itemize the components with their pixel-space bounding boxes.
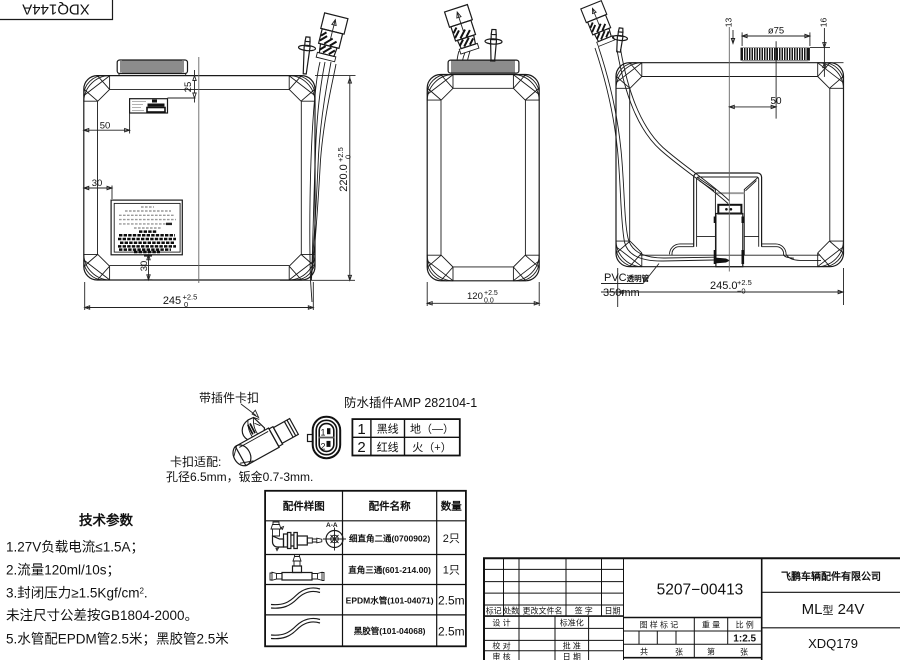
svg-text:设 计: 设 计 <box>492 618 510 628</box>
svg-text:30: 30 <box>92 178 103 189</box>
svg-text:图 样 标 记: 图 样 标 记 <box>640 620 679 630</box>
svg-text:2.流量120ml/10s；: 2.流量120ml/10s； <box>6 563 120 579</box>
svg-text:A-A: A-A <box>326 522 338 529</box>
svg-text:配件样图: 配件样图 <box>283 500 325 513</box>
svg-text:红线: 红线 <box>377 440 399 454</box>
svg-text:日 期: 日 期 <box>563 653 581 660</box>
svg-text:2只: 2只 <box>443 533 460 545</box>
svg-text:共: 共 <box>640 648 648 657</box>
svg-text:标准化: 标准化 <box>560 618 584 628</box>
svg-text:−0: −0 <box>737 287 746 296</box>
svg-text:1: 1 <box>321 428 326 438</box>
svg-text:张: 张 <box>740 648 748 657</box>
svg-text:1:2.5: 1:2.5 <box>733 634 756 645</box>
svg-text:2.5m: 2.5m <box>438 594 465 608</box>
svg-text:0.0: 0.0 <box>484 298 494 305</box>
svg-text:1: 1 <box>357 421 365 438</box>
svg-text:直角三通(601-214.00): 直角三通(601-214.00) <box>348 565 431 575</box>
svg-text:EPDM水管(101-04071): EPDM水管(101-04071) <box>346 596 434 606</box>
svg-text:未注尺寸公差按GB1804-2000。: 未注尺寸公差按GB1804-2000。 <box>6 608 198 623</box>
svg-text:2: 2 <box>357 439 365 456</box>
svg-text:5207−00413: 5207−00413 <box>657 582 744 599</box>
svg-text:1.27V负载电流≤1.5A；: 1.27V负载电流≤1.5A； <box>6 540 144 556</box>
svg-text:处数: 处数 <box>503 606 519 616</box>
svg-text:审 核: 审 核 <box>492 652 510 660</box>
svg-text:卡扣适配:: 卡扣适配: <box>170 455 221 469</box>
svg-text:校 对: 校 对 <box>492 641 510 651</box>
svg-text:比 例: 比 例 <box>736 620 754 630</box>
svg-text:火（+）: 火（+） <box>412 441 451 454</box>
svg-text:更改文件名: 更改文件名 <box>523 606 563 616</box>
svg-text:13: 13 <box>724 18 734 28</box>
svg-text:签 字: 签 字 <box>575 606 593 616</box>
svg-text:5.水管配EPDM管2.5米；黑胶管2.5米: 5.水管配EPDM管2.5米；黑胶管2.5米 <box>6 631 229 648</box>
svg-text:2.5m: 2.5m <box>438 625 465 639</box>
svg-text:黑线: 黑线 <box>377 422 399 436</box>
svg-text:245: 245 <box>163 295 181 307</box>
svg-text:重 量: 重 量 <box>702 620 720 630</box>
svg-text:220.0: 220.0 <box>338 164 350 192</box>
svg-text:XDQ144A: XDQ144A <box>22 1 90 18</box>
svg-text:日期: 日期 <box>605 607 621 616</box>
svg-text:飞鹏车辆配件有限公司: 飞鹏车辆配件有限公司 <box>781 570 881 583</box>
svg-text:0: 0 <box>344 155 353 159</box>
svg-text:+2.5: +2.5 <box>484 290 498 297</box>
svg-text:细直角二通(0700902): 细直角二通(0700902) <box>349 534 430 544</box>
svg-text:技术参数: 技术参数 <box>79 512 133 528</box>
svg-text:50: 50 <box>770 96 782 107</box>
svg-text:120: 120 <box>467 291 483 302</box>
svg-text:245.0: 245.0 <box>710 280 738 292</box>
svg-text:批 准: 批 准 <box>563 641 581 651</box>
svg-text:25: 25 <box>183 82 194 93</box>
svg-text:标记: 标记 <box>486 606 502 616</box>
svg-text:50: 50 <box>100 121 111 132</box>
svg-text:16: 16 <box>819 18 829 28</box>
svg-text:张: 张 <box>675 648 683 657</box>
svg-text:0: 0 <box>184 300 188 309</box>
svg-text:XDQ179: XDQ179 <box>808 636 858 651</box>
svg-text:黑胶管(101-04068): 黑胶管(101-04068) <box>354 626 426 636</box>
svg-text:数量: 数量 <box>440 500 462 513</box>
svg-text:ø75: ø75 <box>768 26 784 37</box>
svg-text:地（—）: 地（—） <box>410 423 454 436</box>
svg-text:2: 2 <box>321 442 326 452</box>
svg-text:防水插件AMP 282104-1: 防水插件AMP 282104-1 <box>344 395 477 410</box>
svg-text:PVC透明管: PVC透明管 <box>604 272 650 284</box>
svg-text:ML型 24V: ML型 24V <box>802 601 865 618</box>
svg-text:带插件卡扣: 带插件卡扣 <box>199 391 259 405</box>
svg-text:1只: 1只 <box>443 565 460 577</box>
svg-text:30: 30 <box>139 261 150 272</box>
svg-text:孔径6.5mm，钣金0.7-3mm.: 孔径6.5mm，钣金0.7-3mm. <box>166 469 313 484</box>
svg-text:第: 第 <box>707 647 715 657</box>
svg-text:配件名称: 配件名称 <box>369 500 411 513</box>
svg-text:3.封闭压力≥1.5Kgf/cm2.: 3.封闭压力≥1.5Kgf/cm2. <box>6 586 148 601</box>
